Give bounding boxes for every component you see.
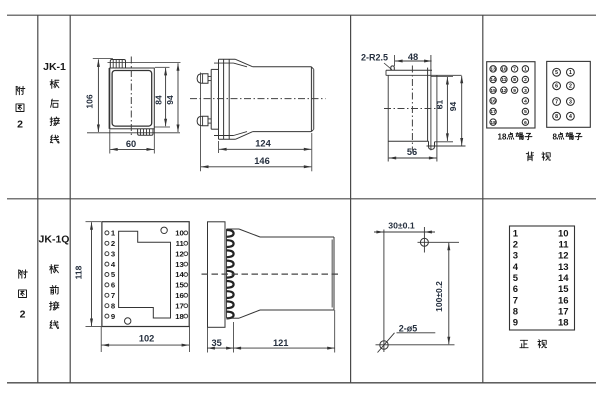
svg-text:18: 18 <box>490 120 496 126</box>
svg-text:102: 102 <box>139 333 155 343</box>
svg-text:121: 121 <box>273 338 289 348</box>
svg-text:5: 5 <box>513 273 519 284</box>
svg-text:17: 17 <box>558 306 569 317</box>
svg-text:6: 6 <box>111 281 115 290</box>
svg-text:13: 13 <box>175 260 184 269</box>
svg-text:12: 12 <box>501 88 507 94</box>
svg-text:2: 2 <box>20 309 26 321</box>
svg-text:18: 18 <box>498 133 507 142</box>
svg-text:5: 5 <box>524 109 527 115</box>
svg-text:JK-1: JK-1 <box>43 61 66 73</box>
svg-text:16: 16 <box>558 295 569 306</box>
svg-text:146: 146 <box>254 156 270 166</box>
svg-text:2: 2 <box>111 239 115 248</box>
svg-text:11: 11 <box>559 239 570 250</box>
svg-text:1: 1 <box>569 70 572 76</box>
svg-text:7: 7 <box>555 99 558 105</box>
svg-text:18: 18 <box>175 312 184 321</box>
svg-text:9: 9 <box>513 318 518 329</box>
svg-text:10: 10 <box>501 67 507 73</box>
svg-text:11: 11 <box>501 77 506 83</box>
svg-text:7: 7 <box>513 295 518 306</box>
svg-text:8: 8 <box>513 77 516 83</box>
svg-text:8: 8 <box>555 114 558 120</box>
svg-text:100±0.2: 100±0.2 <box>434 281 444 312</box>
svg-text:2-R2.5: 2-R2.5 <box>361 53 388 63</box>
svg-text:16: 16 <box>175 291 184 300</box>
svg-text:6: 6 <box>555 84 558 90</box>
svg-text:14: 14 <box>175 270 184 279</box>
svg-text:6: 6 <box>524 120 527 126</box>
svg-text:JK-1Q: JK-1Q <box>39 234 70 246</box>
svg-text:15: 15 <box>490 88 496 94</box>
svg-text:2: 2 <box>524 77 527 83</box>
svg-text:4: 4 <box>513 262 519 273</box>
svg-text:106: 106 <box>84 94 94 108</box>
svg-text:7: 7 <box>111 291 115 300</box>
svg-text:18: 18 <box>558 318 569 329</box>
svg-text:3: 3 <box>513 251 518 262</box>
svg-text:8: 8 <box>111 301 116 310</box>
svg-text:17: 17 <box>175 301 184 310</box>
svg-text:6: 6 <box>513 284 518 295</box>
svg-text:30±0.1: 30±0.1 <box>388 220 415 230</box>
svg-text:12: 12 <box>175 249 184 258</box>
svg-text:7: 7 <box>513 67 516 73</box>
svg-text:5: 5 <box>111 270 116 279</box>
svg-text:3: 3 <box>569 99 572 105</box>
svg-text:56: 56 <box>407 147 417 157</box>
svg-text:81: 81 <box>434 100 444 110</box>
svg-text:2-ø5: 2-ø5 <box>399 323 418 333</box>
svg-text:48: 48 <box>408 52 418 62</box>
svg-text:4: 4 <box>524 99 527 105</box>
svg-text:1: 1 <box>513 228 519 239</box>
svg-text:11: 11 <box>176 239 185 248</box>
svg-text:1: 1 <box>524 67 527 73</box>
svg-text:2: 2 <box>569 84 572 90</box>
svg-text:17: 17 <box>490 109 496 115</box>
svg-text:2: 2 <box>17 119 23 131</box>
svg-text:9: 9 <box>513 88 516 94</box>
svg-text:60: 60 <box>126 139 136 149</box>
svg-text:12: 12 <box>558 251 569 262</box>
svg-text:4: 4 <box>111 260 116 269</box>
svg-text:94: 94 <box>165 95 175 105</box>
svg-text:5: 5 <box>555 70 558 76</box>
svg-text:118: 118 <box>73 265 83 279</box>
svg-text:13: 13 <box>558 262 569 273</box>
svg-text:4: 4 <box>569 114 572 120</box>
svg-text:9: 9 <box>111 312 115 321</box>
svg-text:3: 3 <box>111 249 115 258</box>
svg-text:13: 13 <box>490 67 496 73</box>
svg-text:15: 15 <box>175 281 184 290</box>
svg-text:35: 35 <box>212 338 222 348</box>
svg-text:14: 14 <box>558 273 569 284</box>
svg-text:15: 15 <box>558 284 569 295</box>
svg-text:2: 2 <box>513 239 518 250</box>
svg-text:124: 124 <box>255 138 271 148</box>
svg-text:8: 8 <box>553 133 558 142</box>
svg-text:84: 84 <box>154 95 164 105</box>
svg-text:1: 1 <box>111 229 116 238</box>
svg-text:94: 94 <box>448 102 458 112</box>
svg-text:14: 14 <box>490 77 496 83</box>
svg-text:16: 16 <box>490 99 496 105</box>
svg-text:10: 10 <box>558 228 569 239</box>
svg-text:8: 8 <box>513 306 518 317</box>
svg-text:3: 3 <box>524 88 527 94</box>
svg-text:10: 10 <box>175 229 184 238</box>
